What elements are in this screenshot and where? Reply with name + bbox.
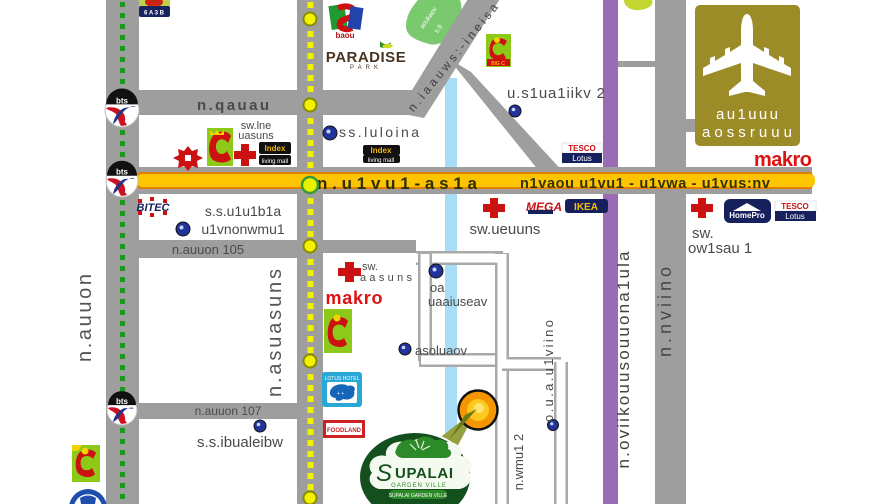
svg-text:uaaiuseav: uaaiuseav	[428, 294, 488, 309]
svg-text:6 A 3 B: 6 A 3 B	[144, 11, 165, 17]
svg-text:bts: bts	[116, 397, 129, 406]
svg-text:SUPALAI GARDEN VILLE: SUPALAI GARDEN VILLE	[389, 493, 448, 499]
svg-text:bts: bts	[116, 168, 129, 177]
svg-text:TESCO: TESCO	[781, 202, 809, 211]
svg-text:Lotus: Lotus	[785, 212, 805, 221]
svg-text:asoluaov: asoluaov	[415, 343, 468, 358]
svg-text:ss.luloina: ss.luloina	[339, 124, 419, 140]
svg-text:UPALAI: UPALAI	[395, 465, 453, 482]
svg-text:LOTUS HOTEL: LOTUS HOTEL	[325, 376, 360, 382]
svg-text:Lotus: Lotus	[572, 154, 592, 163]
svg-text:n.auuon 105: n.auuon 105	[172, 242, 244, 257]
svg-text:s.s.ibualeibw: s.s.ibualeibw	[197, 434, 283, 451]
svg-text:makro: makro	[326, 288, 383, 308]
svg-text:oa: oa	[430, 280, 445, 295]
svg-text:PARK: PARK	[350, 65, 382, 71]
svg-text:TESCO: TESCO	[568, 144, 596, 153]
svg-text:BIG C: BIG C	[491, 61, 505, 67]
svg-text:bts: bts	[116, 96, 129, 105]
svg-text:n.wmu1 2: n.wmu1 2	[511, 434, 526, 490]
svg-text:baou: baou	[335, 31, 354, 40]
svg-text:IKEA: IKEA	[574, 202, 598, 213]
svg-text:sw.ueuuns: sw.ueuuns	[470, 221, 541, 238]
svg-text:Index: Index	[371, 146, 392, 155]
svg-text:GARDEN VILLE: GARDEN VILLE	[391, 483, 447, 489]
svg-text:ow1sau 1: ow1sau 1	[688, 240, 752, 257]
svg-text:o.u.a.u1viino: o.u.a.u1viino	[541, 320, 556, 422]
svg-text:n.asuasuns: n.asuasuns	[264, 269, 286, 397]
svg-text:living mall: living mall	[262, 159, 288, 165]
svg-text:s.s.u1u1b1a: s.s.u1u1b1a	[205, 203, 281, 219]
svg-text:n.oviikouusouuona1ula: n.oviikouusouuona1ula	[614, 251, 633, 469]
svg-text:uasuns: uasuns	[238, 130, 274, 142]
svg-text:n1vaou u1vu1 - u1vwa - u1vus:n: n1vaou u1vu1 - u1vwa - u1vus:nv	[520, 176, 770, 192]
svg-text:u.s1ua1iikv 2: u.s1ua1iikv 2	[507, 85, 605, 102]
svg-text:FOODLAND: FOODLAND	[327, 428, 362, 434]
svg-text:* * *: * * *	[84, 493, 93, 499]
svg-text:Index: Index	[265, 144, 286, 153]
svg-text:PARADISE: PARADISE	[326, 49, 406, 66]
svg-text:makro: makro	[754, 149, 812, 171]
svg-text:n.auuon 107: n.auuon 107	[195, 404, 262, 418]
svg-text:living mall: living mall	[368, 158, 394, 164]
svg-text:u1vnonwmu1: u1vnonwmu1	[201, 221, 284, 237]
svg-text:S: S	[376, 460, 392, 487]
svg-text:HomePro: HomePro	[729, 211, 765, 220]
svg-text:+ +: + +	[337, 391, 344, 397]
